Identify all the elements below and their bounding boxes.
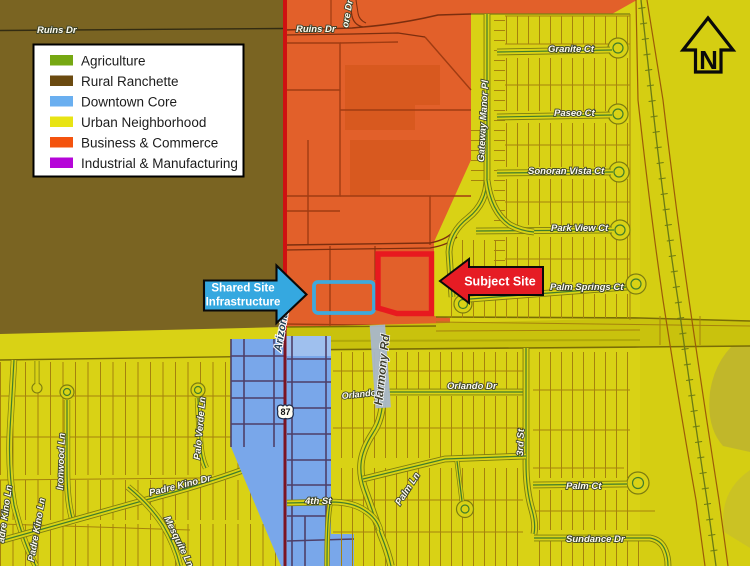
svg-text:Industrial & Manufacturing: Industrial & Manufacturing	[81, 156, 238, 171]
svg-text:Rural Ranchette: Rural Ranchette	[81, 74, 179, 89]
svg-text:Sundance Dr: Sundance Dr	[566, 534, 626, 545]
svg-text:Business & Commerce: Business & Commerce	[81, 136, 218, 151]
svg-text:Shared Site: Shared Site	[211, 283, 274, 295]
svg-text:Ruins Dr: Ruins Dr	[37, 25, 78, 36]
svg-text:Park View Ct: Park View Ct	[551, 223, 609, 234]
svg-text:87: 87	[280, 407, 290, 417]
svg-text:Agriculture: Agriculture	[81, 54, 146, 69]
svg-text:Orlando Dr: Orlando Dr	[447, 381, 498, 392]
svg-text:4th St: 4th St	[304, 496, 332, 507]
svg-text:Subject Site: Subject Site	[464, 275, 536, 289]
svg-text:N: N	[699, 45, 718, 75]
svg-text:Granite Ct: Granite Ct	[548, 44, 595, 55]
svg-text:Sonoran Vista Ct: Sonoran Vista Ct	[528, 166, 605, 177]
svg-text:Infrastructure: Infrastructure	[206, 297, 281, 309]
svg-text:Urban Neighborhood: Urban Neighborhood	[81, 115, 206, 130]
svg-text:3rd St: 3rd St	[515, 428, 527, 456]
svg-text:Palm Springs Ct: Palm Springs Ct	[550, 282, 624, 293]
svg-text:Paseo Ct: Paseo Ct	[554, 108, 595, 119]
svg-text:Ruins Dr: Ruins Dr	[296, 24, 337, 35]
svg-text:Ironwood Ln: Ironwood Ln	[55, 433, 68, 491]
svg-text:Palm Ct: Palm Ct	[566, 481, 602, 492]
svg-text:Downtown Core: Downtown Core	[81, 95, 177, 110]
